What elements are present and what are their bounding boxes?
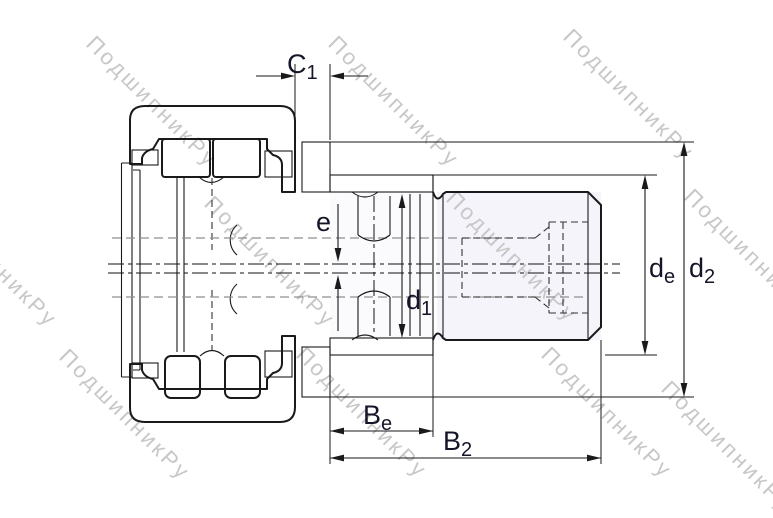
watermark-text: ПодшипникРу (323, 31, 464, 172)
watermark-text: ПодшипникРу (0, 191, 63, 332)
watermark-text: ПодшипникРу (536, 342, 677, 483)
drawing-canvas: ПодшипникРу ПодшипникРу ПодшипникРу Подш… (0, 0, 773, 518)
dim-label-de: de (649, 253, 675, 288)
dim-label-e: e (316, 207, 331, 237)
dim-label-b2: B2 (443, 426, 472, 461)
dim-label-d2: d2 (689, 253, 715, 288)
dim-label-c1: C1 (287, 49, 318, 84)
watermark-text: ПодшипникРу (558, 24, 699, 165)
dim-label-be: Be (363, 400, 392, 435)
technical-drawing: ПодшипникРу ПодшипникРу ПодшипникРу Подш… (0, 0, 773, 518)
